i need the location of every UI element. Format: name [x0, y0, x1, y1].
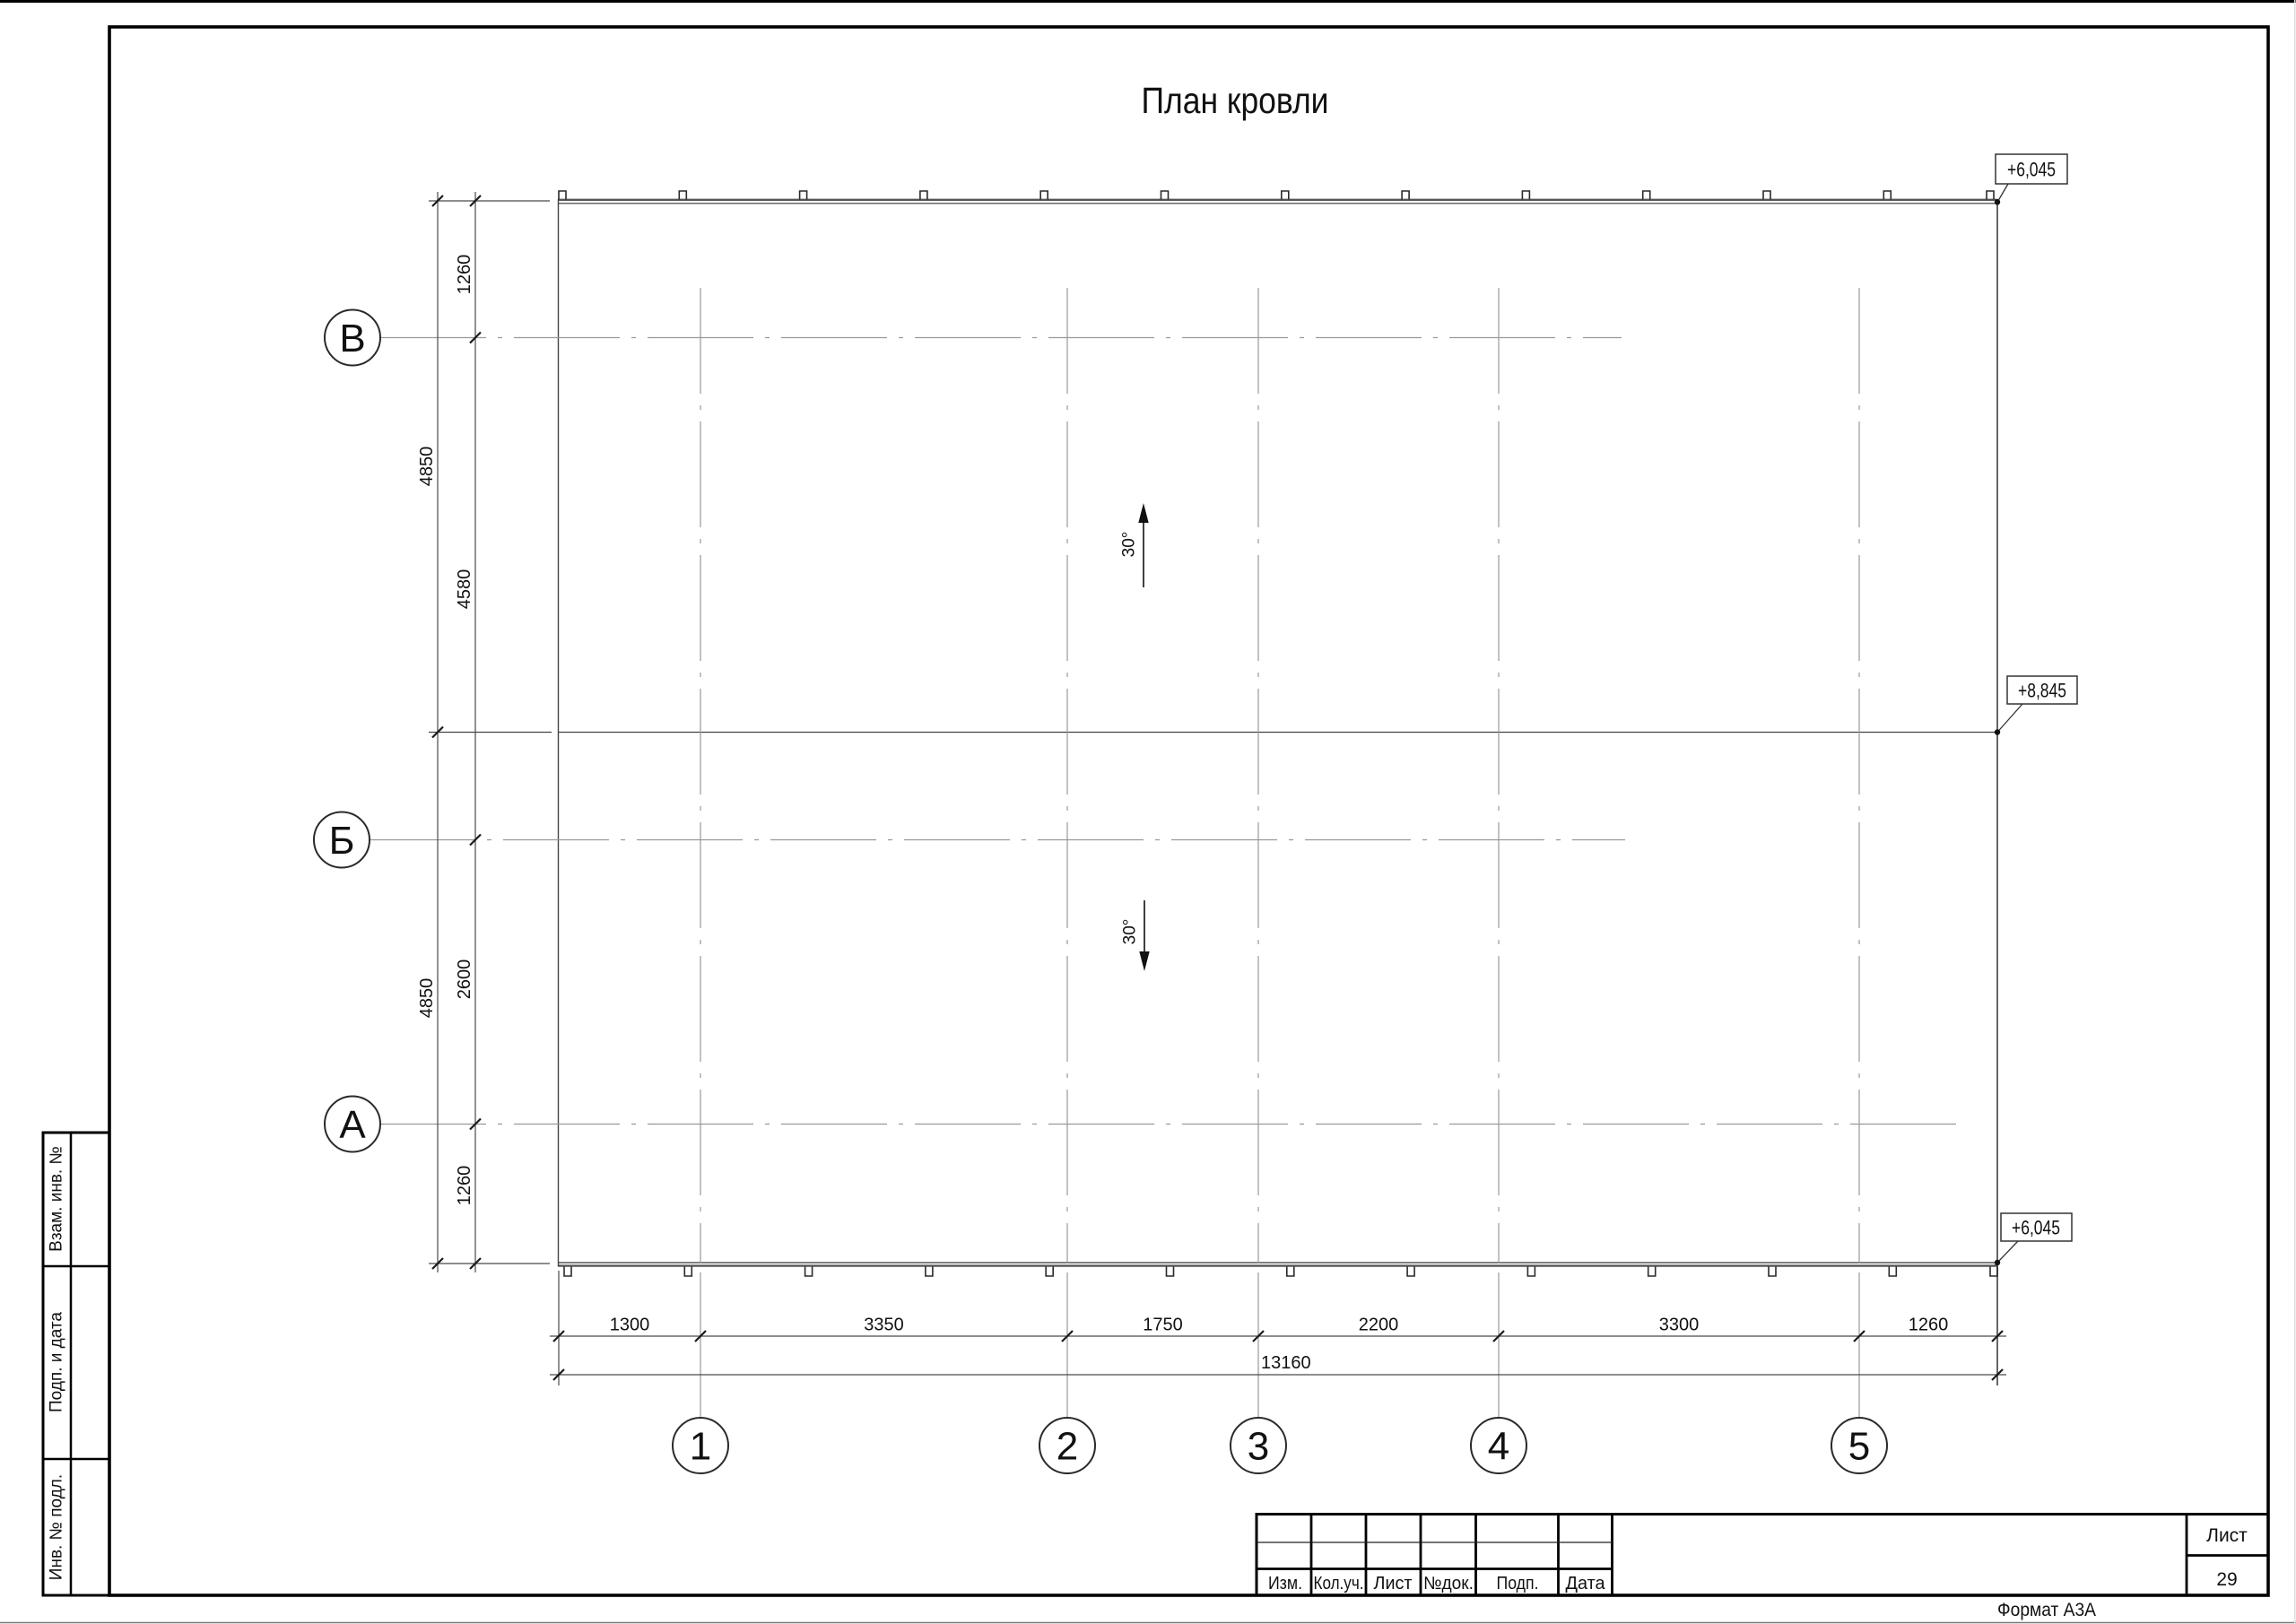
svg-text:Лист: Лист: [2206, 1525, 2248, 1546]
svg-text:1260: 1260: [1909, 1316, 1949, 1335]
svg-text:План кровли: План кровли: [1142, 80, 1329, 121]
svg-text:+6,045: +6,045: [2007, 159, 2056, 181]
svg-text:+6,045: +6,045: [2012, 1217, 2060, 1239]
svg-text:Взам. инв. №: Взам. инв. №: [48, 1146, 66, 1252]
svg-text:Кол.уч.: Кол.уч.: [1314, 1574, 1364, 1594]
svg-text:3: 3: [1248, 1425, 1269, 1469]
svg-text:29: 29: [2216, 1569, 2237, 1590]
svg-text:Подп. и дата: Подп. и дата: [48, 1312, 66, 1412]
svg-text:Б: Б: [329, 819, 355, 863]
svg-text:4580: 4580: [455, 569, 474, 610]
svg-text:2200: 2200: [1359, 1316, 1399, 1335]
svg-text:30°: 30°: [1120, 532, 1139, 558]
svg-text:1750: 1750: [1143, 1316, 1183, 1335]
svg-text:В: В: [339, 317, 365, 360]
svg-text:1300: 1300: [610, 1316, 650, 1335]
svg-text:Лист: Лист: [1374, 1574, 1413, 1594]
svg-text:Инв. № подл.: Инв. № подл.: [48, 1474, 66, 1580]
svg-text:Изм.: Изм.: [1268, 1574, 1302, 1594]
svg-text:4: 4: [1488, 1425, 1509, 1469]
svg-text:13160: 13160: [1261, 1353, 1311, 1373]
svg-text:+8,845: +8,845: [2018, 680, 2066, 702]
svg-text:№док.: №док.: [1423, 1574, 1474, 1594]
svg-text:1260: 1260: [455, 255, 474, 295]
svg-text:1260: 1260: [455, 1166, 474, 1206]
svg-text:1: 1: [690, 1425, 711, 1469]
svg-text:А: А: [339, 1103, 366, 1147]
svg-text:2: 2: [1057, 1425, 1078, 1469]
svg-text:5: 5: [1848, 1425, 1870, 1469]
svg-text:30°: 30°: [1121, 919, 1140, 945]
svg-text:2600: 2600: [455, 960, 474, 1000]
svg-text:4850: 4850: [417, 978, 437, 1019]
svg-text:3300: 3300: [1659, 1316, 1700, 1335]
svg-text:3350: 3350: [864, 1316, 904, 1335]
svg-text:Подп.: Подп.: [1497, 1574, 1539, 1594]
svg-text:Формат А3А: Формат А3А: [1997, 1600, 2096, 1620]
svg-text:4850: 4850: [417, 447, 437, 487]
svg-text:Дата: Дата: [1566, 1574, 1606, 1594]
